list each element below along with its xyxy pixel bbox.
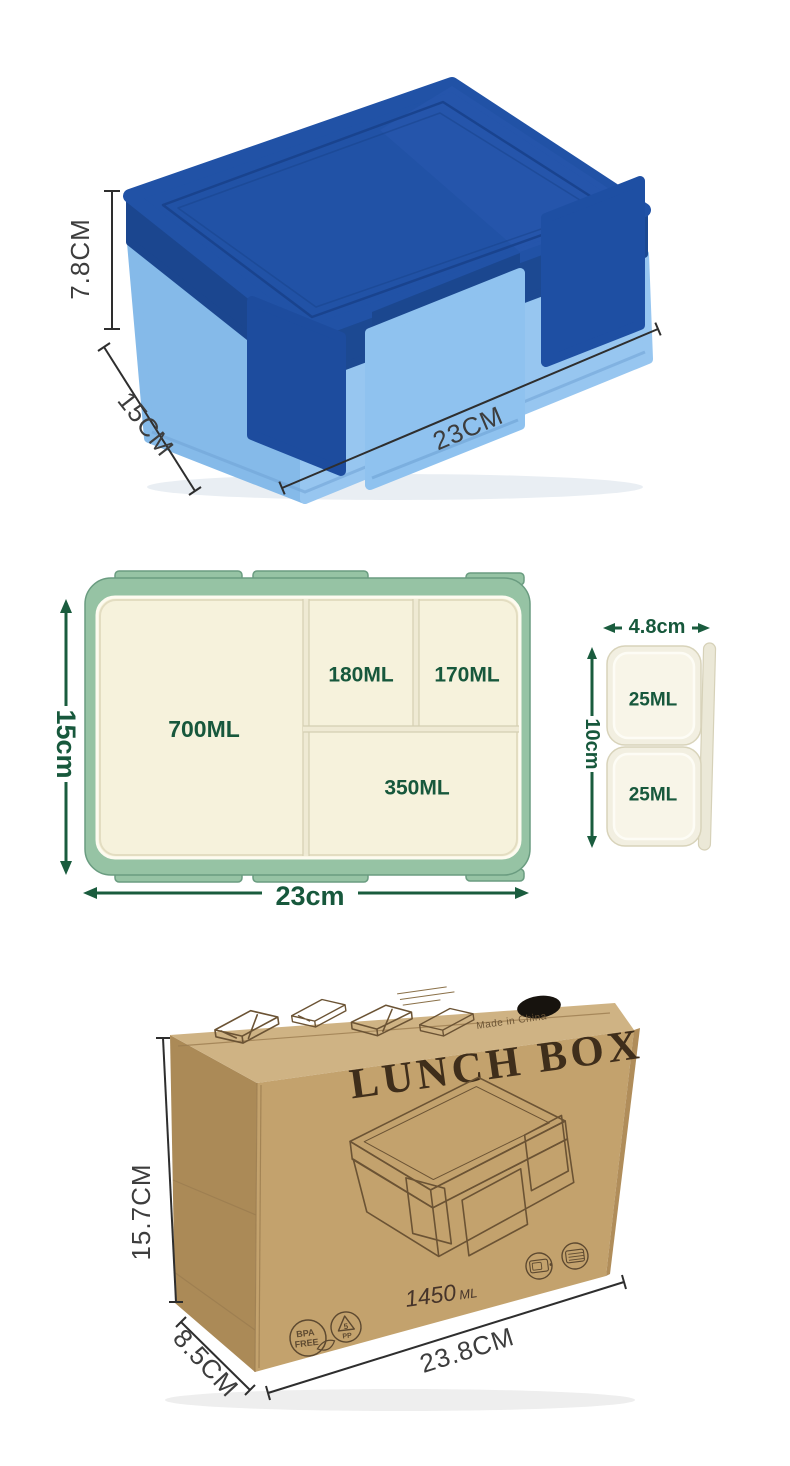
package-shadow (165, 1389, 635, 1411)
sauce-width-label: 4.8cm (629, 616, 686, 638)
sauce-cell-bottom-label: 25ML (629, 785, 678, 806)
package-photo: Made in China LUNCH BOX 1450ML BPA FREE … (126, 986, 646, 1411)
sauce-width-dimension: 4.8cm (603, 616, 710, 638)
compartment-700ml-label: 700ML (168, 716, 240, 742)
tray-top-view: 700ML 180ML 170ML 350ML 15cm 23cm 25ML (51, 571, 716, 911)
package-height-label: 15.7CM (126, 1163, 156, 1260)
sauce-height-dimension: 10cm (581, 647, 603, 848)
product-dimension-infographic: 7.8CM 15CM 23CM (0, 0, 790, 1466)
infographic-canvas: 7.8CM 15CM 23CM (0, 0, 790, 1466)
compartment-350ml-label: 350ML (384, 777, 450, 800)
blue-lunchbox-photo: 7.8CM 15CM 23CM (65, 84, 661, 500)
tray-width-dimension: 23cm (83, 881, 529, 911)
tray-width-label: 23cm (275, 881, 344, 911)
box-right-latch (546, 181, 640, 362)
sauce-cell-top-label: 25ML (629, 690, 678, 711)
tray-height-label: 15cm (51, 709, 81, 778)
pp-label: PP (342, 1332, 352, 1340)
compartment-170ml-label: 170ML (434, 664, 500, 687)
compartment-180ml-label: 180ML (328, 664, 394, 687)
package-top-fineprint (397, 986, 455, 1006)
tray-height-dimension: 15cm (51, 599, 81, 875)
box-left-latch (252, 301, 341, 471)
box-height-dimension: 7.8CM (65, 191, 120, 329)
package-width-label: 23.8CM (416, 1321, 518, 1379)
sauce-container: 25ML 25ML 4.8cm 10cm (581, 616, 716, 850)
sauce-height-label: 10cm (581, 718, 603, 769)
box-height-label: 7.8CM (65, 218, 95, 300)
